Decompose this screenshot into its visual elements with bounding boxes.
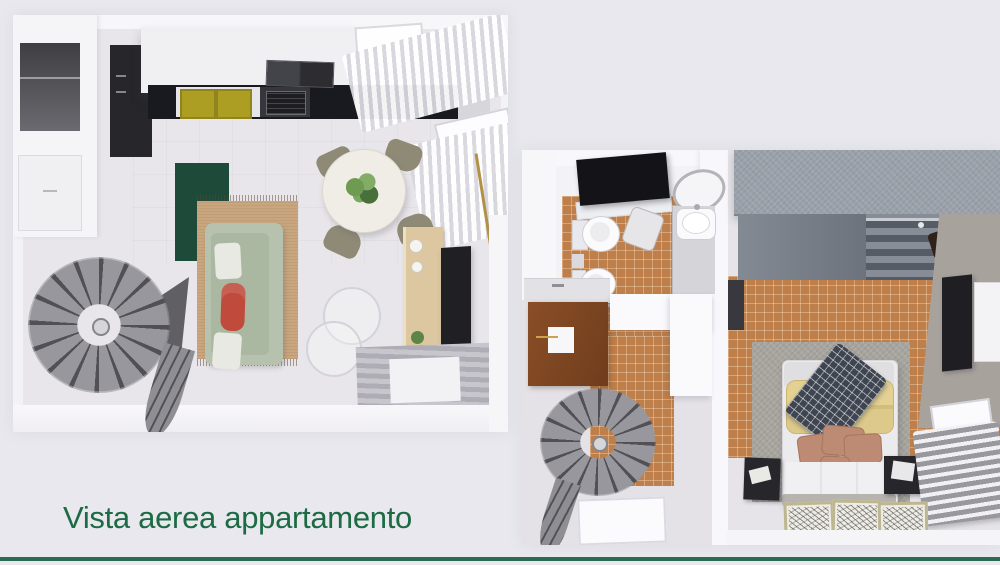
- picture-art: [789, 506, 830, 531]
- slide-background: { "caption": { "text": "Vista aerea appa…: [0, 0, 1000, 565]
- striped-rug-panel: [389, 357, 460, 403]
- door-panel: [548, 327, 574, 353]
- toilet-bowl: [590, 222, 610, 242]
- alcove-niche-dark: [20, 43, 80, 131]
- bottom-divider-line: [0, 557, 1000, 561]
- bedroom-bottom-wall: [726, 530, 1000, 545]
- duvet: [784, 462, 894, 498]
- cabinet-handle: [43, 190, 57, 192]
- table-plant: [343, 171, 383, 207]
- wall-cabinet: [974, 282, 1000, 362]
- counter-faucet: [552, 284, 564, 287]
- sideboard-plant: [411, 331, 424, 344]
- staircase-hub: [92, 318, 110, 336]
- hall-counter: [524, 278, 610, 303]
- unit-handle: [116, 75, 126, 77]
- shower: [576, 152, 670, 206]
- sofa-cushion: [214, 242, 242, 279]
- floor-skylight: [577, 496, 667, 545]
- alcove-shelf: [20, 77, 80, 79]
- bottom-wall: [13, 405, 508, 432]
- vase: [409, 239, 423, 253]
- faucet: [694, 204, 700, 210]
- wireframe-chair: [306, 321, 362, 377]
- bath-shelf: [572, 254, 584, 268]
- floorplan-left-view: [13, 15, 508, 432]
- nightstand-photo: [891, 461, 915, 482]
- unit-handle: [116, 91, 126, 93]
- sofa-cushion: [212, 332, 242, 370]
- wardrobe-door: [738, 214, 866, 280]
- sink-basin: [180, 89, 216, 119]
- partition-wall: [670, 294, 712, 396]
- corner-furniture: [728, 280, 744, 330]
- alcove-cabinet: [18, 155, 82, 231]
- vase: [411, 261, 423, 273]
- cutting-boards: [266, 60, 335, 88]
- staircase-hub: [592, 436, 608, 452]
- floorplan-right-view: [522, 150, 1000, 545]
- oven-window: [266, 91, 306, 115]
- hanger-knob: [918, 222, 924, 228]
- right-wall: [489, 215, 508, 432]
- door-handle: [536, 336, 558, 338]
- picture-art: [837, 505, 877, 532]
- caption-text: Vista aerea appartamento: [63, 500, 412, 536]
- tv: [942, 274, 972, 371]
- washbasin-bowl: [682, 212, 710, 234]
- sink-basin: [216, 89, 252, 119]
- wardrobe: [734, 150, 1000, 216]
- picture-art: [883, 507, 923, 532]
- red-pillow: [220, 283, 246, 332]
